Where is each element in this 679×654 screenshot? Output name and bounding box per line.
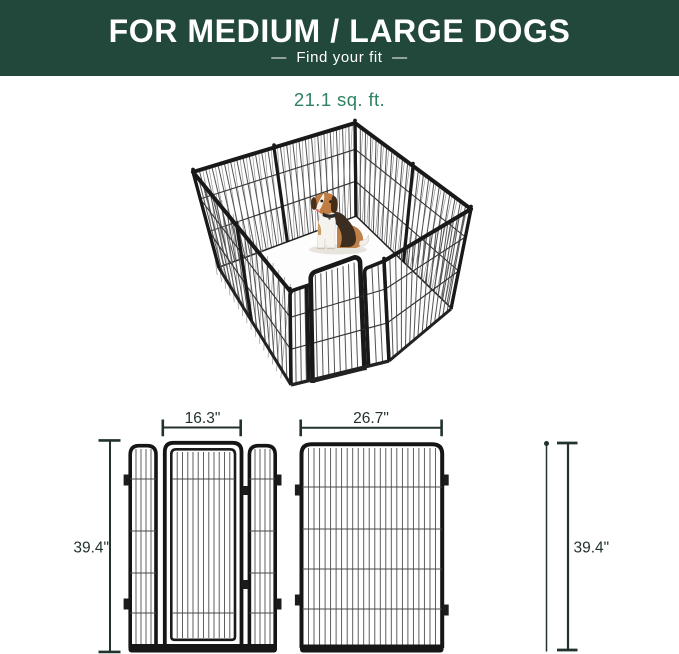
svg-text:26.7": 26.7" — [353, 410, 389, 427]
svg-text:16.3": 16.3" — [185, 410, 221, 427]
svg-text:39.4": 39.4" — [574, 540, 610, 557]
svg-text:39.4": 39.4" — [73, 540, 109, 557]
